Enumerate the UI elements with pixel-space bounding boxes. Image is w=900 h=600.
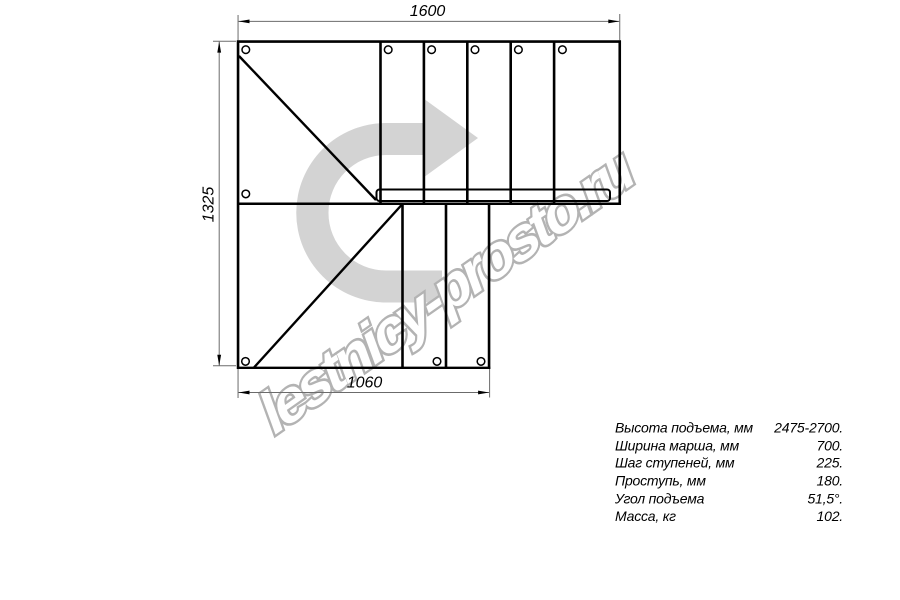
svg-text:Масса, кг: Масса, кг <box>615 508 676 524</box>
svg-text:1060: 1060 <box>347 375 383 392</box>
svg-text:225.: 225. <box>816 455 843 471</box>
svg-text:Ширина марша, мм: Ширина марша, мм <box>615 437 740 453</box>
svg-text:Высота подъема, мм: Высота подъема, мм <box>615 420 754 436</box>
svg-text:2475-2700.: 2475-2700. <box>773 420 843 436</box>
svg-text:51,5°.: 51,5°. <box>807 490 843 506</box>
svg-text:180.: 180. <box>817 473 843 489</box>
svg-text:Шаг ступеней, мм: Шаг ступеней, мм <box>615 455 735 471</box>
svg-text:Проступь, мм: Проступь, мм <box>615 473 706 489</box>
svg-text:700.: 700. <box>817 437 843 453</box>
svg-text:1325: 1325 <box>201 187 218 223</box>
svg-text:102.: 102. <box>817 508 843 524</box>
svg-text:Угол подъема: Угол подъема <box>614 490 705 506</box>
svg-text:1600: 1600 <box>410 3 446 20</box>
